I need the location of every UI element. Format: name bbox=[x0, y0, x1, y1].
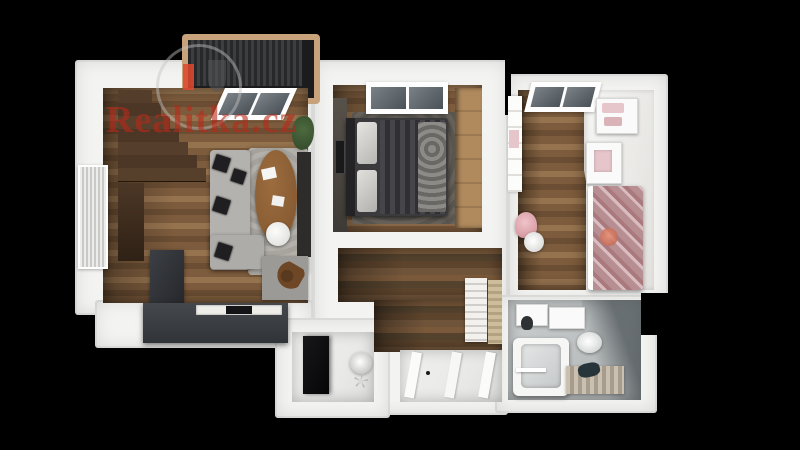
desk-pink-box bbox=[594, 150, 612, 172]
desk-chair bbox=[350, 352, 372, 374]
stair-step bbox=[118, 142, 188, 156]
children-skylight bbox=[524, 82, 601, 112]
watermark-logo-chimney bbox=[183, 64, 194, 90]
door-handle bbox=[426, 371, 430, 375]
chair-base bbox=[354, 374, 368, 388]
skylight-pane bbox=[409, 87, 444, 109]
vanity bbox=[549, 307, 585, 329]
bed-pillow bbox=[357, 170, 377, 212]
bathtub-step bbox=[516, 368, 546, 372]
children-stool bbox=[524, 232, 544, 252]
wardrobe bbox=[455, 88, 482, 228]
hallway-cabinet bbox=[465, 278, 487, 342]
radiator bbox=[78, 165, 108, 269]
shelf-pink-items bbox=[604, 117, 622, 126]
bedroom-skylight bbox=[366, 82, 448, 114]
stair-step bbox=[118, 155, 197, 169]
cooktop bbox=[226, 306, 252, 314]
wall-notch-right bbox=[641, 293, 673, 335]
apartment-render: Realitka.cz bbox=[0, 0, 800, 450]
wardrobe-pink-trim bbox=[509, 130, 519, 148]
shelf-pink-items bbox=[602, 103, 624, 113]
laundry-bin bbox=[521, 316, 533, 330]
bathtub-basin bbox=[521, 344, 561, 388]
tv-cabinet bbox=[297, 152, 311, 257]
black-wardrobe bbox=[303, 336, 329, 394]
stair-step bbox=[118, 168, 206, 182]
table-papers bbox=[271, 195, 284, 207]
hallway-bench bbox=[488, 280, 502, 344]
refrigerator bbox=[150, 250, 184, 303]
stair-side-panel bbox=[118, 183, 144, 261]
skylight-pane bbox=[371, 87, 406, 109]
pouf bbox=[266, 222, 290, 246]
bed-throw bbox=[418, 122, 446, 212]
skylight-pane bbox=[562, 87, 595, 107]
children-room-floor bbox=[518, 90, 586, 290]
bed-headboard bbox=[346, 118, 355, 216]
watermark-logo-house bbox=[208, 60, 226, 92]
bed-pillow bbox=[357, 122, 377, 164]
wall-picture-frame bbox=[335, 140, 345, 174]
children-bed-plush bbox=[600, 228, 618, 246]
watermark-text: Realitka.cz bbox=[106, 98, 297, 142]
toilet bbox=[577, 332, 602, 353]
skylight-pane bbox=[531, 87, 564, 107]
